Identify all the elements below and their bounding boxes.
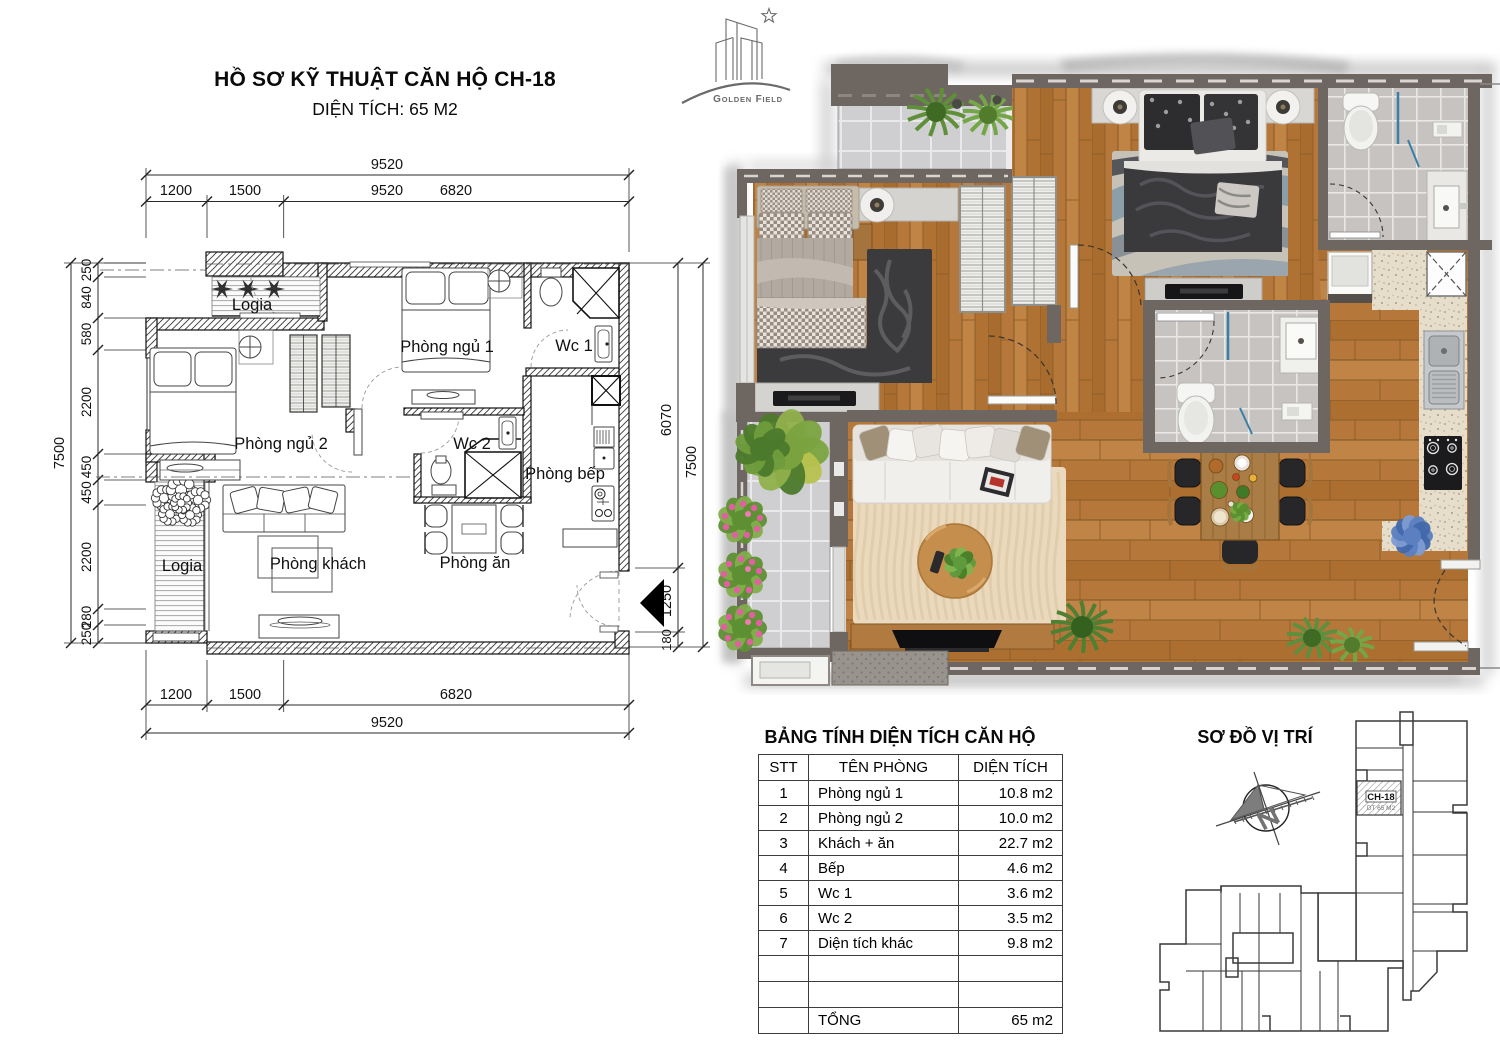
svg-text:Wc 1: Wc 1	[555, 337, 593, 355]
svg-text:1200: 1200	[160, 183, 192, 199]
svg-text:1200: 1200	[160, 687, 192, 703]
svg-text:9520: 9520	[371, 157, 403, 173]
svg-text:7500: 7500	[684, 446, 700, 478]
svg-text:1500: 1500	[229, 183, 261, 199]
svg-text:250: 250	[79, 259, 94, 282]
svg-text:180: 180	[659, 629, 674, 651]
svg-text:Logia: Logia	[162, 557, 203, 575]
svg-text:DT 65 M2: DT 65 M2	[1367, 805, 1396, 812]
svg-text:450: 450	[79, 456, 94, 479]
svg-text:2200: 2200	[79, 542, 94, 572]
svg-text:9520: 9520	[371, 715, 403, 731]
svg-text:CH-18: CH-18	[1367, 792, 1394, 803]
svg-text:GOLDEN FIELD: GOLDEN FIELD	[713, 94, 783, 105]
svg-text:Wc 2: Wc 2	[453, 435, 491, 453]
svg-text:Phòng bếp: Phòng bếp	[525, 465, 605, 483]
svg-text:450: 450	[79, 481, 94, 504]
svg-text:9520: 9520	[371, 183, 403, 199]
svg-text:250: 250	[79, 623, 94, 646]
svg-text:7500: 7500	[52, 437, 68, 469]
svg-text:Phòng ngủ 1: Phòng ngủ 1	[400, 338, 494, 356]
svg-text:6820: 6820	[440, 183, 472, 199]
svg-text:1500: 1500	[229, 687, 261, 703]
svg-text:6070: 6070	[659, 404, 675, 436]
svg-text:Phòng khách: Phòng khách	[270, 555, 366, 573]
svg-text:580: 580	[79, 323, 94, 346]
svg-text:Logia: Logia	[232, 296, 273, 314]
svg-text:Phòng ăn: Phòng ăn	[440, 554, 511, 572]
svg-text:840: 840	[79, 286, 94, 309]
svg-text:Phòng ngủ 2: Phòng ngủ 2	[234, 435, 328, 453]
svg-text:6820: 6820	[440, 687, 472, 703]
svg-text:2200: 2200	[79, 387, 94, 417]
